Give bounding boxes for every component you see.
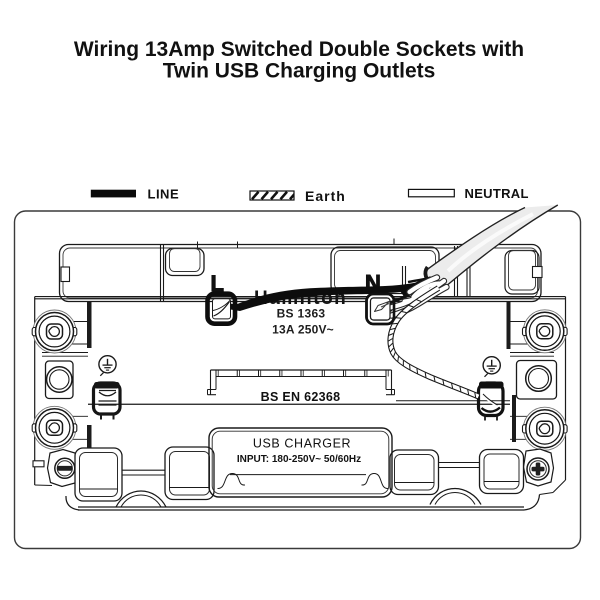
svg-text:BS 1363: BS 1363 — [277, 307, 326, 321]
svg-text:NEUTRAL: NEUTRAL — [465, 186, 529, 201]
svg-text:Wiring 13Amp Switched Double S: Wiring 13Amp Switched Double Sockets wit… — [74, 38, 524, 61]
svg-text:LINE: LINE — [148, 186, 180, 201]
svg-text:Twin USB Charging Outlets: Twin USB Charging Outlets — [163, 60, 436, 83]
svg-text:Earth: Earth — [305, 188, 346, 204]
svg-text:13A 250V~: 13A 250V~ — [272, 323, 334, 337]
svg-text:USB CHARGER: USB CHARGER — [253, 437, 351, 451]
svg-text:BS EN 62368: BS EN 62368 — [261, 390, 341, 404]
svg-text:INPUT: 180-250V~ 50/60Hz: INPUT: 180-250V~ 50/60Hz — [237, 454, 361, 465]
